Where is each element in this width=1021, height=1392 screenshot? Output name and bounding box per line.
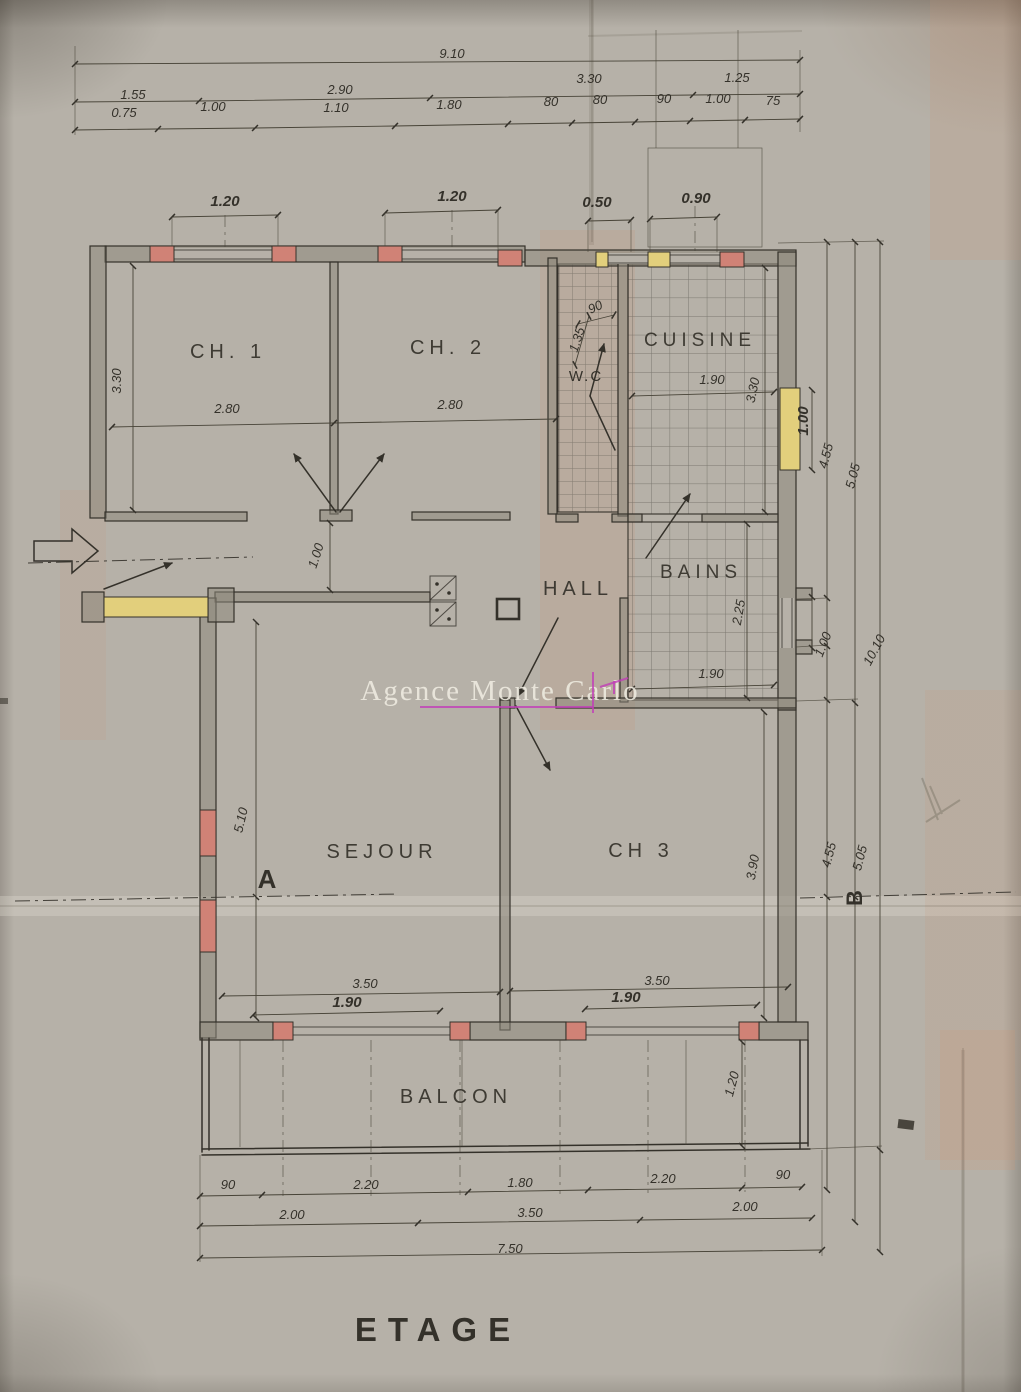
window-post-red xyxy=(272,246,296,262)
west-wall-upper xyxy=(90,246,106,518)
dim-cuisine-width: 1.90 xyxy=(699,372,725,387)
west-window-red-b xyxy=(200,900,216,952)
room-label-ch1: CH. 1 xyxy=(190,341,266,363)
dim-right-505a: 5.05 xyxy=(842,461,863,490)
section-label-b: B xyxy=(842,890,867,906)
dim-right-455b: 4.55 xyxy=(818,840,839,869)
south-window-post-red xyxy=(450,1022,470,1040)
dim-top-r3-5: 80 xyxy=(544,94,559,109)
dim-top-r2-2: 2.90 xyxy=(326,82,353,97)
south-wall-a xyxy=(200,1022,273,1040)
hall-north-wall-b xyxy=(412,512,510,520)
dim-top-r3-9: 75 xyxy=(766,93,781,108)
dim-right-455a: 4.55 xyxy=(815,441,836,470)
dim-south-left-190: 1.90 xyxy=(332,994,362,1011)
dim-east-window: 1.00 xyxy=(795,406,812,436)
window-post-yellow xyxy=(596,252,608,267)
room-label-balcon: BALCON xyxy=(400,1086,512,1108)
dim-bains-width: 1.90 xyxy=(698,666,724,681)
entry-window-yellow xyxy=(104,597,208,617)
dim-south-right-350: 3.50 xyxy=(644,973,670,988)
hall-north-wall-a xyxy=(105,512,247,521)
dim-south-left-350: 3.50 xyxy=(352,976,378,991)
dim-bot-r2-2: 3.50 xyxy=(517,1205,543,1220)
cuisine-south-wall-a xyxy=(628,514,642,522)
dim-bot-r2-3: 2.00 xyxy=(731,1199,758,1214)
watermark-text: Agence Monte Carlo xyxy=(360,675,639,707)
scanned-blueprint: 9.10 1.55 2.90 3.30 1.25 0.75 1.00 1.10 … xyxy=(0,0,1021,1392)
dim-balcon-depth: 1.20 xyxy=(721,1069,742,1098)
room-label-hall: HALL xyxy=(543,578,613,600)
dim-ch3-height: 3.90 xyxy=(743,853,762,881)
dim-ch1-width: 2.80 xyxy=(213,401,240,416)
dim-top-r3-1: 0.75 xyxy=(111,105,137,120)
dim-top-r3-6: 80 xyxy=(593,92,608,107)
room-label-bains: BAINS xyxy=(660,562,742,583)
dim-bot-r1-4: 2.20 xyxy=(649,1171,676,1186)
entry-post-right xyxy=(208,588,234,622)
dim-right-505b: 5.05 xyxy=(849,843,870,872)
section-label-a: A xyxy=(258,864,277,894)
window-post-yellow xyxy=(648,252,670,267)
dim-bot-r1-3: 1.80 xyxy=(507,1175,533,1190)
dim-window-ch2: 1.20 xyxy=(437,188,467,205)
west-window-red-a xyxy=(200,810,216,856)
page-title: ETAGE xyxy=(355,1311,521,1348)
dim-east-door: 1.00 xyxy=(811,629,835,659)
partition-ch1-ch2 xyxy=(330,262,338,514)
window-post-red xyxy=(498,250,522,266)
dim-ch1-height: 3.30 xyxy=(109,368,124,394)
dim-window-k2: 0.90 xyxy=(681,190,711,207)
room-label-sejour: SEJOUR xyxy=(326,841,437,863)
entry-door xyxy=(104,563,172,589)
flue-symbols xyxy=(430,576,519,626)
dim-bot-r1-5: 90 xyxy=(776,1167,791,1182)
south-wall-c xyxy=(759,1022,808,1040)
dim-window-k1: 0.50 xyxy=(582,194,612,211)
wc-south-wall-a xyxy=(556,514,578,522)
dim-south-right-190: 1.90 xyxy=(611,989,641,1006)
ch2-door xyxy=(340,454,384,512)
dim-right-1010: 10.10 xyxy=(860,631,889,667)
window-post-red xyxy=(378,246,402,262)
dim-bot-r2-1: 2.00 xyxy=(278,1207,305,1222)
room-label-wc: W.C xyxy=(569,368,603,385)
wc-south-wall-b xyxy=(612,514,628,522)
dim-ch2-width: 2.80 xyxy=(436,397,463,412)
south-window-post-red xyxy=(273,1022,293,1040)
entrance-arrow xyxy=(34,529,98,573)
south-wall-b xyxy=(470,1022,566,1040)
dim-top-r2-1: 1.55 xyxy=(120,87,146,102)
section-line-b xyxy=(800,892,1016,898)
dim-top-r3-2: 1.00 xyxy=(200,99,226,114)
dim-top-r3-4: 1.80 xyxy=(436,97,462,112)
dim-top-r2-3: 3.30 xyxy=(576,71,602,86)
dim-sejour-height: 5.10 xyxy=(230,805,250,834)
dim-top-r3-8: 1.00 xyxy=(705,91,731,106)
dim-top-r3-7: 90 xyxy=(657,91,672,106)
dim-bot-r1-1: 90 xyxy=(221,1177,236,1192)
dim-window-ch1: 1.20 xyxy=(210,193,240,210)
room-label-ch3: CH 3 xyxy=(608,840,674,862)
dim-top-total: 9.10 xyxy=(439,46,465,61)
wall-wc-cuisine xyxy=(618,260,628,516)
room-label-cuisine: CUISINE xyxy=(644,330,756,351)
south-window-post-red xyxy=(739,1022,759,1040)
east-wall-lower xyxy=(778,710,796,1022)
dim-top-r2-4: 1.25 xyxy=(724,70,750,85)
partition-sejour-ch3 xyxy=(500,700,510,1030)
room-label-ch2: CH. 2 xyxy=(410,337,486,359)
window-post-red xyxy=(720,252,744,267)
dim-top-r3-3: 1.10 xyxy=(323,100,349,115)
pencil-marks xyxy=(0,698,960,1130)
entry-post-left xyxy=(82,592,104,622)
window-post-red xyxy=(150,246,174,262)
east-door-stub-a xyxy=(796,588,812,600)
dim-bot-total: 7.50 xyxy=(497,1241,523,1256)
floor-plan-svg: 9.10 1.55 2.90 3.30 1.25 0.75 1.00 1.10 … xyxy=(0,0,1021,1392)
wall-ch2-wc xyxy=(548,258,557,514)
ch3-door xyxy=(516,706,550,770)
cuisine-south-wall-b xyxy=(702,514,778,522)
dim-hall: 1.00 xyxy=(305,541,327,570)
dim-bot-r1-2: 2.20 xyxy=(352,1177,379,1192)
hall-sejour-wall xyxy=(215,592,430,602)
south-window-post-red xyxy=(566,1022,586,1040)
